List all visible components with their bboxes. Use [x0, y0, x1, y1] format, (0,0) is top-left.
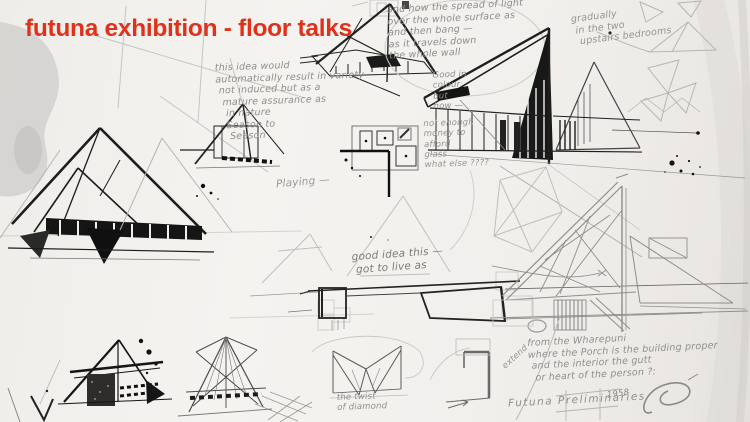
sketch-topleft-pencil: [0, 0, 409, 318]
note-light-spread: and how the spread of light over the who…: [387, 0, 526, 62]
check-mark-corner: [8, 388, 53, 422]
note-idea-variety: this idea would automatically result in …: [215, 57, 367, 143]
signature-mark: [644, 374, 698, 413]
sketch-angular-bracket: [430, 339, 490, 408]
note-twist: the twist of diamond: [337, 391, 388, 413]
slide-title: futuna exhibition - floor talks: [25, 15, 352, 43]
paper-shadow-left: [0, 22, 59, 197]
sketch-faceted-form: [312, 336, 423, 398]
sketch-house-bottom-left: [40, 339, 172, 406]
sketch-elevation-strip: [250, 266, 748, 330]
note-wharepuni: from the Wharepuni where the Porch is th…: [527, 328, 719, 384]
slide: futuna exhibition - floor talks and how …: [0, 0, 750, 422]
note-good-colour: Good in colour but how —: [432, 69, 468, 112]
sketch-tent-structure: [178, 337, 312, 422]
note-materials: not enough money to afford glass what el…: [423, 117, 489, 171]
